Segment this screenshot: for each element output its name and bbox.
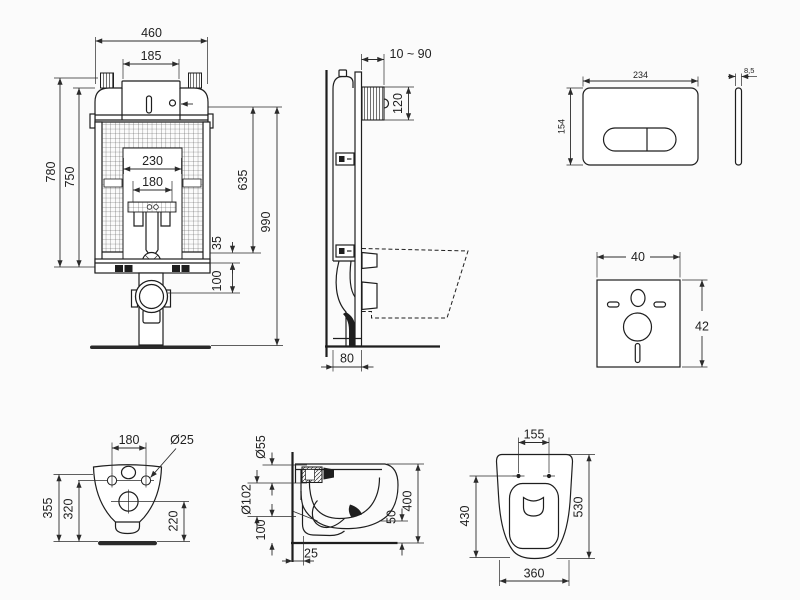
flush-bend-side — [336, 261, 346, 346]
dim-label-front-clearance: 50 — [385, 510, 399, 524]
bowl-bracket-lower — [362, 282, 377, 310]
bowl-bracket-upper — [362, 253, 377, 269]
dim-label-fixing-height: 320 — [62, 499, 76, 520]
dim-label-hinge-spacing: 155 — [524, 428, 545, 442]
toilet-installation-drawing: 460 185 230 180 780 750 635 990 35 100 — [0, 0, 800, 600]
flush-plate-edge — [736, 88, 742, 165]
dim-label-hole-diameter: Ø25 — [170, 433, 194, 447]
dim-label-mat-width: 40 — [631, 250, 645, 264]
installation-side-view: 10 ~ 90 120 80 — [321, 47, 468, 372]
outlet-connector — [136, 281, 168, 313]
bowl-outline-top — [497, 455, 573, 559]
dim-label-outlet-height: 100 — [210, 271, 224, 292]
technical-drawing-canvas: 460 185 230 180 780 750 635 990 35 100 — [0, 0, 800, 600]
dim-label-frame-height: 780 — [44, 162, 58, 183]
hanger-tab-left — [90, 114, 95, 128]
dim-label-outlet-axis-height: 100 — [254, 520, 268, 541]
dim-label-mat-height: 42 — [695, 320, 709, 334]
inspection-box — [362, 87, 384, 120]
dim-label-plate-height: 154 — [557, 119, 567, 134]
flush-plate-side-view: 8,5 — [728, 66, 757, 165]
dim-label-bowl-height: 400 — [401, 491, 415, 512]
frame-bottom-rail — [95, 259, 210, 273]
dim-label-hole-spacing: 180 — [119, 433, 140, 447]
dim-label-frame-depth: 80 — [340, 352, 354, 366]
grid-slot-left — [104, 179, 122, 187]
cistern-frame-front-view: 460 185 230 180 780 750 635 990 35 100 — [44, 26, 283, 349]
dim-label-rear-outlet-height: 220 — [167, 511, 181, 532]
bowl-trap-cover — [116, 522, 140, 534]
dim-label-inlet-diameter: Ø55 — [254, 435, 268, 459]
dim-label-wall-distance: 10 ~ 90 — [390, 47, 432, 61]
dim-label-rod-spacing: 185 — [141, 49, 162, 63]
frame-rail-left — [95, 122, 102, 272]
mounting-rod-left — [101, 73, 114, 88]
bowl-body-rear — [94, 465, 162, 522]
dim-label-overall-length: 530 — [572, 497, 586, 518]
mounting-rod-right — [189, 73, 202, 88]
dim-label-inner-length: 430 — [458, 506, 472, 527]
dim-label-frame-width: 460 — [141, 26, 162, 40]
dim-label-total-height: 990 — [259, 212, 273, 233]
bowl-side-view: Ø55 Ø102 100 25 50 400 — [240, 435, 425, 565]
frame-rail-right — [203, 122, 210, 272]
dim-label-opening-inner-width: 180 — [142, 175, 163, 189]
dim-label-elbow-offset: 35 — [210, 236, 224, 250]
flush-plate — [583, 88, 698, 165]
flush-plate-front-view: 234 154 — [557, 70, 699, 165]
bowl-top-view: 155 430 530 360 — [458, 428, 595, 587]
dim-label-wall-clearance: 25 — [304, 547, 318, 561]
dim-label-plate-width: 234 — [633, 70, 648, 80]
dim-label-tank-height: 750 — [63, 167, 77, 188]
sound-insulation-mat-view: 40 42 — [597, 250, 709, 367]
mounting-face — [98, 541, 157, 545]
dim-label-outlet-diameter: Ø102 — [240, 484, 254, 515]
grid-slot-right — [183, 179, 201, 187]
base-plate — [90, 346, 211, 350]
dim-label-opening-width: 230 — [142, 154, 163, 168]
dim-label-overall-width: 360 — [524, 567, 545, 581]
trap-curve — [312, 501, 344, 528]
cistern-profile — [333, 77, 353, 262]
dim-label-box-height: 120 — [391, 93, 405, 114]
dim-label-plate-thickness: 8,5 — [744, 66, 754, 75]
dim-label-flush-pipe-height: 635 — [236, 170, 250, 191]
frame-rail-side — [355, 72, 362, 346]
bowl-outline-dashed — [362, 249, 468, 319]
insulation-mat — [597, 280, 680, 367]
bowl-rear-view: 180 Ø25 355 320 220 — [41, 433, 194, 545]
dim-label-rear-height: 355 — [41, 498, 55, 519]
